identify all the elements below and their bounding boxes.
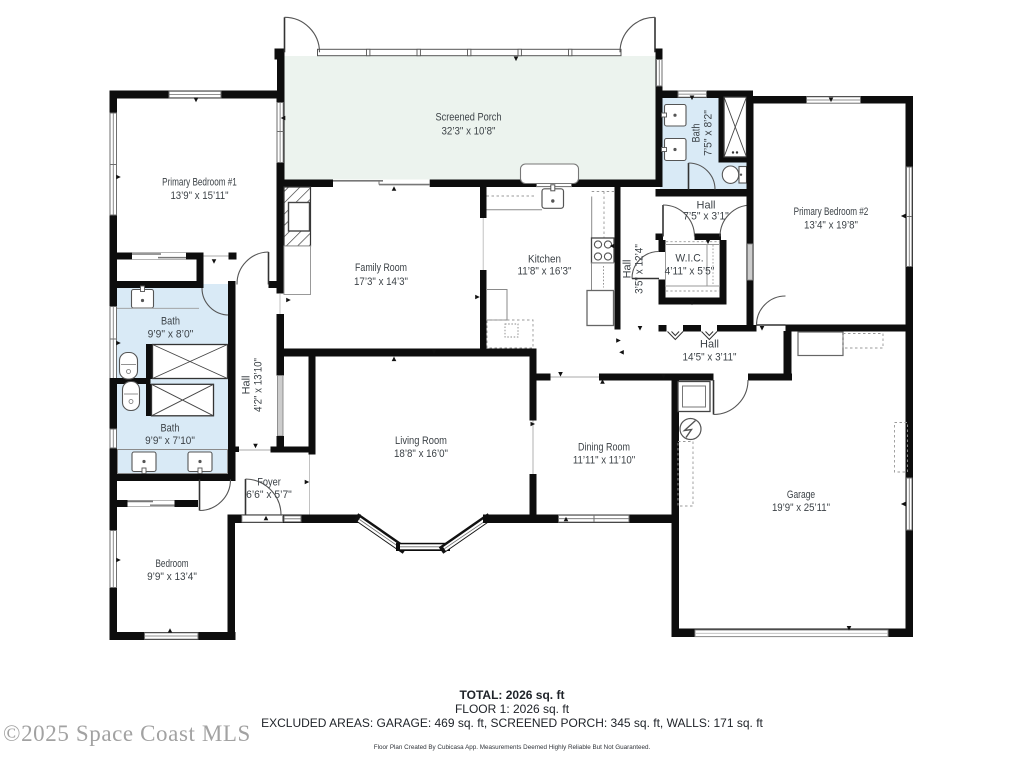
svg-text:9’9" x 8’0": 9’9" x 8’0" — [148, 328, 194, 340]
svg-text:13’4" x 19’8": 13’4" x 19’8" — [804, 219, 858, 231]
svg-text:14’5" x 3’11": 14’5" x 3’11" — [683, 351, 737, 363]
svg-text:Primary Bedroom #2: Primary Bedroom #2 — [794, 206, 869, 218]
svg-text:7’5" x 3’1": 7’5" x 3’1" — [683, 210, 729, 222]
svg-text:4’11" x 5’5": 4’11" x 5’5" — [665, 265, 715, 277]
svg-text:4’2" x 13’10": 4’2" x 13’10" — [252, 358, 264, 412]
svg-text:6’6" x 5’7": 6’6" x 5’7" — [246, 489, 292, 501]
svg-text:Family Room: Family Room — [355, 262, 407, 274]
svg-text:Kitchen: Kitchen — [528, 253, 561, 265]
svg-text:Bedroom: Bedroom — [156, 558, 189, 570]
svg-text:Garage: Garage — [787, 489, 815, 501]
svg-text:W.I.C.: W.I.C. — [675, 252, 703, 264]
svg-text:Hall: Hall — [240, 376, 252, 395]
svg-text:Hall: Hall — [621, 260, 633, 279]
svg-text:9’9" x 13’4": 9’9" x 13’4" — [147, 571, 197, 583]
svg-text:Bath: Bath — [161, 422, 180, 434]
svg-text:Dining Room: Dining Room — [578, 441, 630, 453]
svg-text:18’8" x 16’0": 18’8" x 16’0" — [394, 448, 448, 460]
svg-text:9’9" x 7’10": 9’9" x 7’10" — [145, 435, 195, 447]
svg-text:13’9" x 15’11": 13’9" x 15’11" — [170, 190, 228, 202]
svg-text:Foyer: Foyer — [257, 476, 281, 488]
svg-text:Living Room: Living Room — [395, 435, 447, 447]
svg-text:7’5" x 8’2": 7’5" x 8’2" — [702, 110, 714, 156]
svg-text:19’9" x 25’11": 19’9" x 25’11" — [772, 502, 830, 514]
svg-text:17’3" x 14’3": 17’3" x 14’3" — [354, 276, 408, 288]
svg-text:Bath: Bath — [690, 124, 702, 143]
svg-text:Screened Porch: Screened Porch — [435, 111, 501, 123]
svg-text:Hall: Hall — [700, 338, 719, 350]
svg-text:11’11" x 11’10": 11’11" x 11’10" — [573, 454, 635, 466]
svg-text:Bath: Bath — [161, 315, 180, 327]
svg-text:32’3" x 10’8": 32’3" x 10’8" — [442, 125, 496, 137]
svg-text:11’8" x 16’3": 11’8" x 16’3" — [518, 265, 572, 277]
svg-text:Primary Bedroom #1: Primary Bedroom #1 — [162, 176, 237, 188]
svg-text:3’5" x 12’4": 3’5" x 12’4" — [633, 244, 645, 294]
